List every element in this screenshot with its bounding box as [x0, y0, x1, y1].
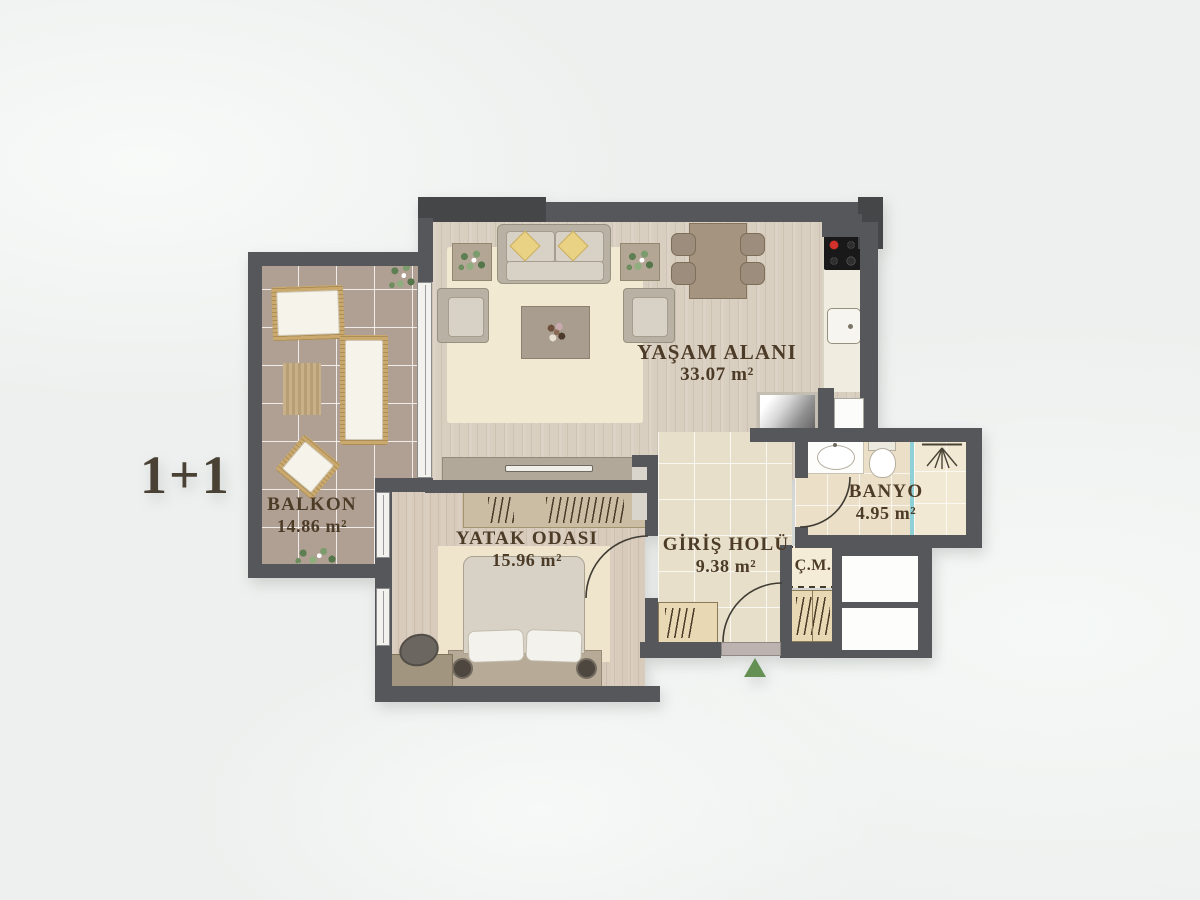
bathroom-top-wall [750, 428, 982, 442]
balcony-rug [283, 363, 321, 415]
balcony-left-wall [248, 252, 262, 578]
bathroom-name: BANYO [849, 481, 924, 503]
wall-stub [632, 455, 658, 467]
hanger-icons [488, 497, 514, 523]
coffee-table [521, 306, 590, 359]
hall-name: GİRİŞ HOLÜ [663, 534, 790, 556]
hall-area: 9.38 m² [663, 556, 790, 577]
balcony-label: BALKON 14.86 m² [267, 494, 357, 537]
balcony-area: 14.86 m² [267, 516, 357, 537]
dining-table [689, 223, 747, 299]
bed-pillow [467, 629, 524, 663]
balcony-bottom-wall [248, 564, 378, 578]
dining-chair [671, 233, 696, 256]
dining-chair [671, 262, 696, 285]
floor-plan: 1+1 YAŞAM ALANI 33.07 m² BALKON 14.86 m²… [0, 0, 1200, 900]
balcony-loveseat [271, 285, 345, 341]
living-room-area: 33.07 m² [637, 364, 797, 386]
bedroom-right-wall-lower [645, 598, 658, 658]
bathroom-label: BANYO 4.95 m² [849, 481, 924, 524]
side-table-left [452, 243, 492, 281]
kitchen-column [822, 214, 862, 237]
bedroom-window [376, 588, 390, 646]
bedroom-area: 15.96 m² [456, 550, 598, 571]
toilet-bowl-icon [869, 448, 896, 478]
bathroom-door-wall-upper [795, 438, 808, 478]
stove-icon [824, 236, 861, 270]
balcony-name: BALKON [267, 494, 357, 516]
hanger-icons [546, 497, 624, 523]
hall-bottom-wall-right [781, 642, 832, 658]
bathroom-sink-icon [806, 440, 864, 474]
bedroom-name: YATAK ODASI [456, 528, 598, 550]
balcony-sofa [340, 335, 388, 445]
bedroom-bottom-wall [375, 686, 660, 702]
wardrobe [463, 492, 649, 528]
sofa [497, 224, 611, 284]
hanger-icons [665, 608, 695, 638]
hanger-icons [796, 597, 830, 635]
living-room-name: YAŞAM ALANI [637, 340, 797, 364]
shaft-opening [842, 556, 918, 602]
living-left-wall [418, 218, 433, 282]
bathroom-right-wall [966, 428, 982, 548]
shower-icon [920, 442, 964, 470]
wall-niche [632, 467, 647, 520]
laundry-label: Ç.M. [795, 557, 832, 575]
bathroom-bottom-wall [795, 535, 982, 548]
bedroom-window [376, 492, 390, 558]
kitchen-shaft [834, 398, 864, 430]
balcony-sliding-door [417, 282, 432, 478]
bathroom-area: 4.95 m² [849, 503, 924, 524]
bedroom-label: YATAK ODASI 15.96 m² [456, 528, 598, 571]
flower-centerpiece-icon [540, 317, 572, 349]
entrance-door-slab [721, 642, 781, 656]
shaft-opening [842, 608, 918, 650]
laundry-name: Ç.M. [795, 557, 832, 575]
fridge-side-wall [818, 388, 834, 432]
hall-label: GİRİŞ HOLÜ 9.38 m² [663, 534, 790, 577]
living-room-label: YAŞAM ALANI 33.07 m² [637, 340, 797, 386]
balcony-top-wall [248, 252, 420, 266]
tv-wall [425, 480, 658, 493]
side-table-right [620, 243, 660, 281]
bed-pillow [525, 629, 582, 663]
shoe-cabinet [658, 602, 718, 644]
dining-chair [740, 262, 765, 285]
armchair-right [623, 288, 675, 343]
tv-icon [505, 465, 593, 472]
bathroom-door-wall-lower [795, 527, 808, 545]
entrance-marker-icon [744, 658, 766, 677]
living-top-wall-header [418, 197, 546, 222]
kitchen-sink-icon [827, 308, 861, 344]
dining-chair [740, 233, 765, 256]
plan-title: 1+1 [140, 444, 231, 506]
armchair-left [437, 288, 489, 343]
tv-console [442, 457, 648, 482]
